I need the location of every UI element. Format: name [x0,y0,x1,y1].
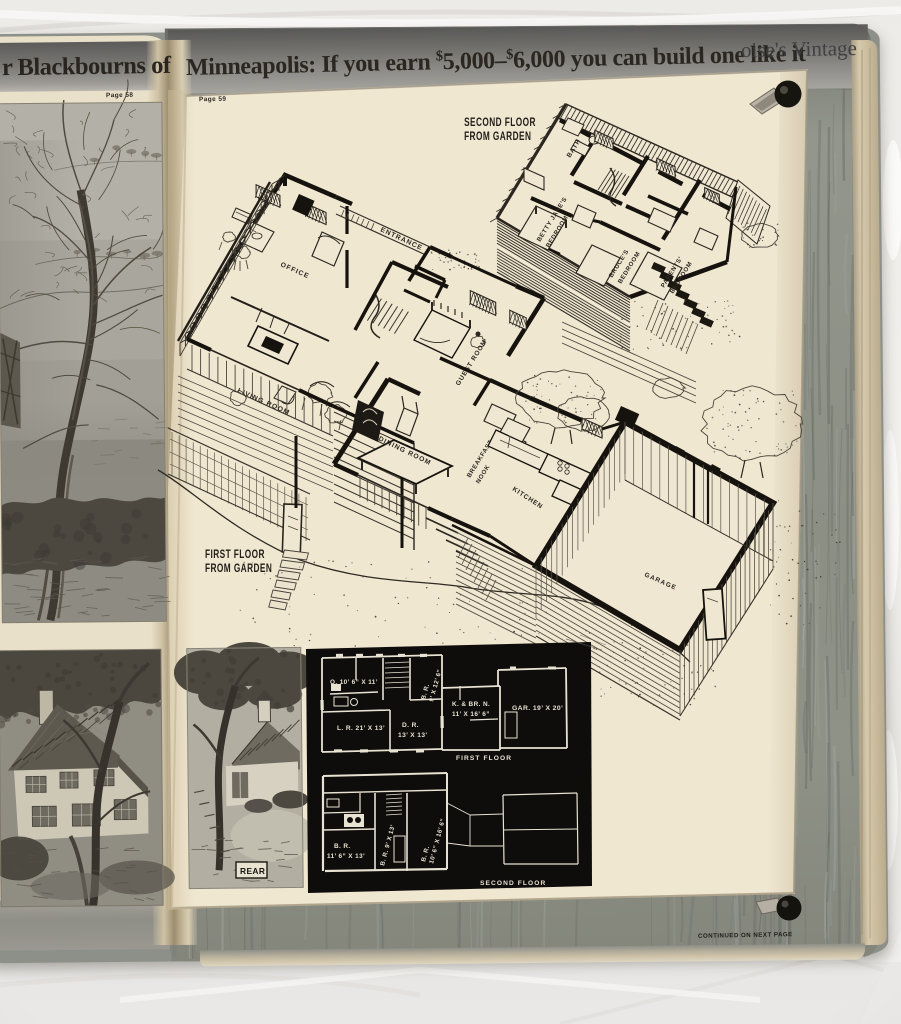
svg-text:FIRST FLOOR: FIRST FLOOR [205,549,265,562]
svg-text:13’ X 13’: 13’ X 13’ [398,732,428,739]
svg-text:O. 10’ 6” X 11’: O. 10’ 6” X 11’ [330,679,378,686]
svg-text:11’ 6” X 13’: 11’ 6” X 13’ [327,853,365,860]
svg-text:K. & BR. N.: K. & BR. N. [452,701,490,708]
svg-text:SECOND FLOOR: SECOND FLOOR [480,880,546,887]
svg-text:B. R.: B. R. [334,843,351,850]
svg-text:SECOND FLOOR: SECOND FLOOR [464,117,536,130]
svg-text:ENTRANCE: ENTRANCE [379,226,423,252]
svg-text:D. R.: D. R. [402,722,419,729]
svg-text:GAR. 19’ X 20’: GAR. 19’ X 20’ [512,705,563,712]
svg-text:OFFICE: OFFICE [279,261,310,280]
svg-text:FROM GARDEN: FROM GARDEN [205,563,272,576]
svg-text:FROM GARDEN: FROM GARDEN [464,131,531,144]
svg-text:KITCHEN: KITCHEN [511,486,544,511]
svg-text:L. R. 21’ X 13’: L. R. 21’ X 13’ [337,725,385,732]
svg-text:11’ X 16’ 6”: 11’ X 16’ 6” [452,711,490,718]
svg-text:REAR: REAR [240,866,265,876]
svg-text:FIRST FLOOR: FIRST FLOOR [456,755,512,762]
